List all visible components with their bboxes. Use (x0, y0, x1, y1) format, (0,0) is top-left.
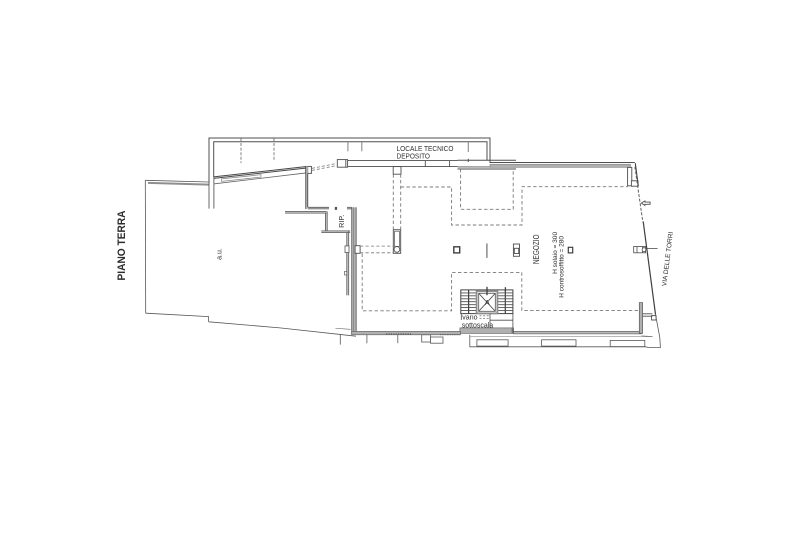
svg-text:NEGOZIO: NEGOZIO (532, 234, 541, 264)
svg-text:a.u.: a.u. (216, 248, 223, 260)
svg-text:DEPOSITO: DEPOSITO (397, 152, 431, 161)
svg-text:vano: vano (462, 314, 477, 321)
svg-text:H controsoffitto = 280: H controsoffitto = 280 (559, 236, 566, 298)
svg-text:A: A (485, 298, 490, 307)
svg-text:RIP.: RIP. (337, 215, 346, 228)
svg-text:PIANO TERRA: PIANO TERRA (116, 210, 128, 280)
